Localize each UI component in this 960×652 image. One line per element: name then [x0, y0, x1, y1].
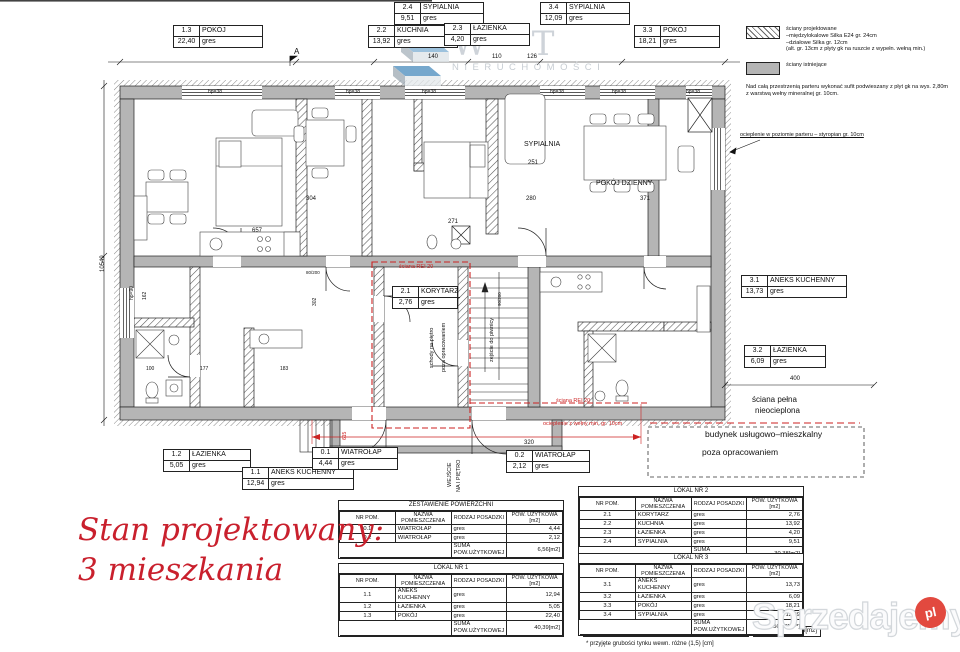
table-cell: 13,73: [747, 578, 803, 593]
table-sum-label: SUMA POW.UŻYTKOWEJ: [691, 620, 747, 635]
room-rl-id: 2.2: [369, 26, 395, 37]
table-cell: POKÓJ: [395, 612, 451, 621]
note-text: ściana pełna: [752, 397, 797, 403]
dim-text: 400: [790, 376, 800, 382]
room-rl-area: 6,09: [745, 357, 771, 367]
room-rl-floor: gres: [771, 357, 825, 367]
dim-text: 126: [527, 54, 537, 60]
room-label-0.2: 0.2WIATROŁAP2,12gres: [506, 450, 590, 473]
room-label-3.4: 3.4SYPIALNIA12,09gres: [540, 2, 630, 25]
floorplan-page: 1.3POKÓJ22,40gres2.2KUCHNIA13,92gres2.4S…: [0, 0, 960, 652]
table-cell: 3.3: [580, 602, 636, 611]
room-label-1.2: 1.2ŁAZIENKA5,05gres: [163, 449, 251, 472]
note-text: schody na piętro: [429, 328, 435, 368]
table-cell: 2.2: [580, 520, 636, 529]
table-column-header: POW. UŻYTKOWA [m2]: [747, 565, 803, 578]
room-rl-id: 2.3: [445, 24, 471, 35]
table-cell: 3.2: [580, 593, 636, 602]
table-column-header: POW. UŻYTKOWA [m2]: [507, 575, 563, 588]
room-rl-name: ŁAZIENKA: [190, 450, 250, 461]
dim-text: 320: [524, 440, 534, 446]
note-text: budynek usługowo–mieszkalny: [705, 431, 822, 437]
table-sum-row: SUMA POW.UŻYTKOWEJ40,39[m2]: [340, 621, 563, 636]
dim-text: 183: [280, 366, 288, 372]
room-rl-name: ANEKS KUCHENNY: [768, 276, 846, 287]
table-row: 2.2KUCHNIAgres13,92: [580, 520, 803, 529]
room-rl-area: 4,44: [313, 459, 339, 469]
dim-text: 110: [492, 54, 502, 60]
room-rl-id: 2.4: [395, 3, 421, 14]
table-cell: gres: [691, 578, 747, 593]
table-cell: ŁAZIENKA: [635, 593, 691, 602]
table-column-header: NAZWA POMIESZCZENIA: [395, 575, 451, 588]
room-rl-area: 13,92: [369, 37, 395, 47]
room-rl-name: WIATROŁAP: [533, 451, 589, 462]
dim-text: 100: [146, 366, 154, 372]
room-rl-id: 1.2: [164, 450, 190, 461]
table-cell: gres: [691, 511, 747, 520]
dim-text: 302: [312, 298, 318, 306]
note-text: NA I PIĘTRO: [456, 460, 462, 492]
rnote-text: ocieplenie z wełny min. gr. 10cm: [543, 421, 622, 427]
table-column-header: NR POM.: [580, 498, 636, 511]
table-cell: 1.3: [340, 612, 396, 621]
table-cell: 12,94: [507, 588, 563, 603]
room-rl-id: 1.1: [243, 468, 269, 479]
note-text: SYPIALNIA: [524, 142, 560, 148]
table-cell: 2.1: [580, 511, 636, 520]
room-rl-area: 13,73: [742, 287, 768, 297]
table-column-header: NAZWA POMIESZCZENIA: [635, 565, 691, 578]
note-text: poza opracowaniem: [702, 449, 778, 455]
table-cell: 3.1: [580, 578, 636, 593]
dim-text: 657: [252, 228, 262, 234]
table-column-header: NAZWA POMIESZCZENIA: [635, 498, 691, 511]
room-rl-area: 4,20: [445, 35, 471, 45]
dim-text: hp=38: [208, 89, 222, 95]
note-text: nieocieplona: [755, 408, 800, 414]
room-rl-id: 0.2: [507, 451, 533, 462]
dim-text: 371: [640, 196, 650, 202]
table-cell: WIATROŁAP: [395, 525, 451, 534]
dim-text: hp=90: [129, 286, 135, 300]
table-row: 1.2ŁAZIENKAgres5,05: [340, 603, 563, 612]
room-label-3.2: 3.2ŁAZIENKA6,09gres: [744, 345, 826, 368]
table-row: 2.4SYPIALNIAgres9,51: [580, 538, 803, 547]
room-rl-id: 2.1: [393, 287, 419, 298]
room-rl-name: ŁAZIENKA: [471, 24, 529, 35]
table-column-header: RODZAJ POSADZKI: [691, 565, 747, 578]
table-column-header: POW. UŻYTKOWA [m2]: [747, 498, 803, 511]
room-rl-area: 2,12: [507, 462, 533, 472]
table-sum-spacer: [340, 621, 452, 636]
dim-text: 80/200: [306, 270, 320, 276]
table-cell: 2,76: [747, 511, 803, 520]
room-rl-area: 9,51: [395, 14, 421, 24]
dim-text: 251: [528, 160, 538, 166]
room-rl-area: 18,21: [635, 37, 661, 47]
dim-text: hp=38: [422, 89, 436, 95]
room-label-1.1: 1.1ANEKS KUCHENNY12,94gres: [242, 467, 354, 490]
table-cell: 2.4: [580, 538, 636, 547]
dim-text: hp=38: [346, 89, 360, 95]
table-cell: 2,12: [507, 534, 563, 543]
table-cell: SYPIALNIA: [635, 611, 691, 620]
room-rl-name: SYPIALNIA: [421, 3, 483, 14]
table-column-header: RODZAJ POSADZKI: [451, 575, 507, 588]
table-column-header: RODZAJ POSADZKI: [691, 498, 747, 511]
dim-text: hp=38: [612, 89, 626, 95]
room-rl-area: 12,94: [243, 479, 269, 489]
dim-text: 10549: [100, 255, 106, 272]
table-cell: ŁAZIENKA: [635, 529, 691, 538]
table-cell: gres: [451, 525, 507, 534]
room-rl-id: 3.4: [541, 3, 567, 14]
table-cell: gres: [691, 602, 747, 611]
dim-text: A: [294, 49, 299, 55]
table-column-header: RODZAJ POSADZKI: [451, 512, 507, 525]
table-cell: 3.4: [580, 611, 636, 620]
room-rl-floor: gres: [190, 461, 250, 471]
table-cell: ANEKS KUCHENNY: [395, 588, 451, 603]
room-rl-floor: gres: [419, 298, 460, 308]
table-title: LOKAL NR 2: [579, 487, 803, 497]
table-cell: gres: [691, 611, 747, 620]
table-cell: 13,92: [747, 520, 803, 529]
room-label-0.1: 0.1WIATROŁAP4,44gres: [312, 447, 398, 470]
room-rl-floor: gres: [567, 14, 629, 24]
room-rl-floor: gres: [471, 35, 529, 45]
note-text: POKÓJ DZIENNY: [596, 181, 652, 187]
table-header-row: NR POM.NAZWA POMIESZCZENIARODZAJ POSADZK…: [580, 565, 803, 578]
table-sum-label: SUMA POW.UŻYTKOWEJ: [451, 621, 507, 636]
table-cell: KORYTARZ: [635, 511, 691, 520]
table-cell: WIATROŁAP: [395, 534, 451, 543]
room-rl-name: WIATROŁAP: [339, 448, 397, 459]
room-rl-name: KORYTARZ: [419, 287, 460, 298]
table-cell: gres: [451, 603, 507, 612]
dim-text: 615: [342, 432, 348, 440]
room-rl-name: ŁAZIENKA: [771, 346, 825, 357]
room-rl-floor: gres: [661, 37, 719, 47]
stamp-line-2: 3 mieszkania: [78, 550, 384, 590]
room-rl-name: POKÓJ: [200, 26, 262, 37]
room-label-3.1: 3.1ANEKS KUCHENNY13,73gres: [741, 275, 847, 298]
table-title: LOKAL NR 3: [579, 554, 803, 564]
dim-text: hp=38: [550, 89, 564, 95]
room-rl-area: 22,40: [174, 37, 200, 47]
table-cell: 5,05: [507, 603, 563, 612]
room-rl-area: 5,05: [164, 461, 190, 471]
table-cell: gres: [451, 588, 507, 603]
table-cell: 1.2: [340, 603, 396, 612]
room-rl-floor: gres: [533, 462, 589, 472]
note-text: poza opracowaniem: [441, 323, 447, 372]
table-cell: ŁAZIENKA: [395, 603, 451, 612]
room-rl-floor: gres: [200, 37, 262, 47]
table-column-header: NR POM.: [580, 565, 636, 578]
room-rl-floor: gres: [269, 479, 353, 489]
dim-text: 140: [428, 54, 438, 60]
table-cell: gres: [691, 593, 747, 602]
room-label-2.4: 2.4SYPIALNIA9,51gres: [394, 2, 484, 25]
room-label-1.3: 1.3POKÓJ22,40gres: [173, 25, 263, 48]
dim-text: 304: [306, 196, 316, 202]
table-column-header: NAZWA POMIESZCZENIA: [395, 512, 451, 525]
table-row: 1.3POKÓJgres22,40: [340, 612, 563, 621]
room-rl-id: 3.3: [635, 26, 661, 37]
table-cell: gres: [451, 612, 507, 621]
note-text: ocieplenie w poziomie parteru – styropia…: [740, 132, 864, 138]
table-cell: 22,40: [507, 612, 563, 621]
table-cell: ANEKS KUCHENNY: [635, 578, 691, 593]
table-cell: KUCHNIA: [635, 520, 691, 529]
table-sum-label: SUMA POW.UŻYTKOWEJ: [451, 543, 507, 558]
dim-text: 271: [448, 219, 458, 225]
table-row: 2.1KORYTARZgres2,76: [580, 511, 803, 520]
stamp-line-1: Stan projektowany:: [78, 510, 384, 550]
table-sum-value: 6,56[m2]: [507, 543, 563, 558]
room-rl-floor: gres: [339, 459, 397, 469]
room-rl-id: 0.1: [313, 448, 339, 459]
table-header-row: NR POM.NAZWA POMIESZCZENIARODZAJ POSADZK…: [580, 498, 803, 511]
table-sum-spacer: [580, 620, 692, 635]
room-rl-name: POKÓJ: [661, 26, 719, 37]
table-cell: gres: [691, 520, 747, 529]
dim-text: 280: [526, 196, 536, 202]
table-cell: 4,20: [747, 529, 803, 538]
room-label-3.3: 3.3POKÓJ18,21gres: [634, 25, 720, 48]
dim-text: 177: [200, 366, 208, 372]
table-cell: 4,44: [507, 525, 563, 534]
table-cell: gres: [691, 529, 747, 538]
table-lokal-nr-2: LOKAL NR 2NR POM.NAZWA POMIESZCZENIARODZ…: [578, 486, 804, 563]
status-stamp: Stan projektowany: 3 mieszkania: [78, 510, 384, 591]
table-row: 3.1ANEKS KUCHENNYgres13,73: [580, 578, 803, 593]
table-column-header: POW. UŻYTKOWA [m2]: [507, 512, 563, 525]
table-cell: 9,51: [747, 538, 803, 547]
room-rl-name: SYPIALNIA: [567, 3, 629, 14]
room-label-2.3: 2.3ŁAZIENKA4,20gres: [444, 23, 530, 46]
table-cell: gres: [691, 538, 747, 547]
room-rl-id: 3.1: [742, 276, 768, 287]
room-rl-floor: gres: [768, 287, 846, 297]
room-rl-area: 12,09: [541, 14, 567, 24]
table-cell: gres: [451, 534, 507, 543]
dim-text: 162: [142, 292, 148, 300]
table-cell: SYPIALNIA: [635, 538, 691, 547]
table-cell: POKÓJ: [635, 602, 691, 611]
room-rl-area: 2,76: [393, 298, 419, 308]
rnote-text: ściana REI 20: [556, 398, 590, 404]
room-label-2.1: 2.1KORYTARZ2,76gres: [392, 286, 458, 309]
table-row: 2.3ŁAZIENKAgres4,20: [580, 529, 803, 538]
note-text: WEJŚCIE: [447, 463, 453, 487]
note-text: zejście do piwnicy: [489, 318, 495, 362]
rnote-text: ściana REI 20: [399, 264, 433, 270]
table-sum-value: 40,39[m2]: [507, 621, 563, 636]
table-cell: 2.3: [580, 529, 636, 538]
dim-text: hp=38: [686, 89, 700, 95]
room-rl-id: 3.2: [745, 346, 771, 357]
room-rl-id: 1.3: [174, 26, 200, 37]
dim-text: 90/200: [497, 292, 503, 306]
